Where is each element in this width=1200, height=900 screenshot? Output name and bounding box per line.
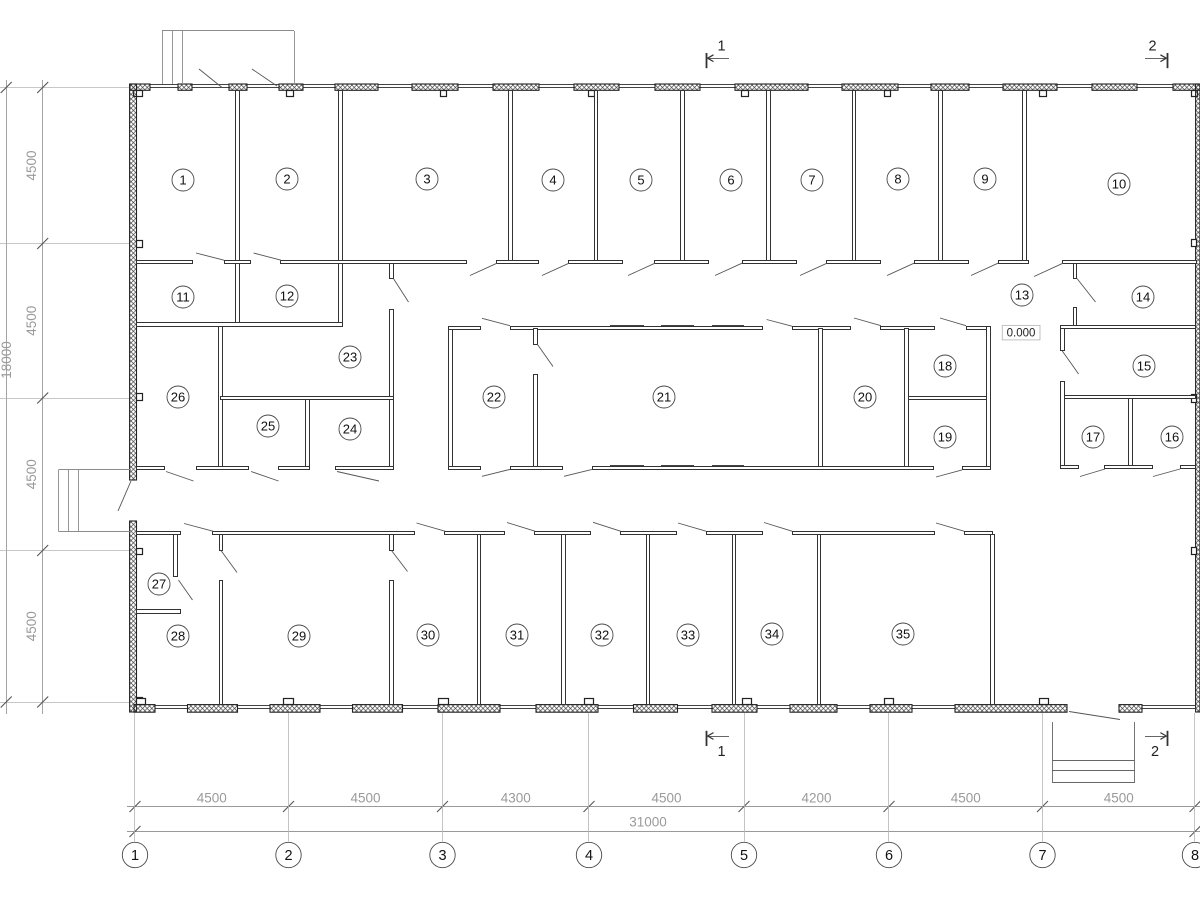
svg-text:5: 5: [637, 173, 644, 188]
svg-text:1: 1: [717, 39, 725, 55]
svg-text:16: 16: [1165, 430, 1179, 445]
svg-text:5: 5: [740, 848, 748, 864]
svg-text:30: 30: [421, 628, 435, 643]
svg-text:4500: 4500: [951, 791, 981, 806]
svg-text:13: 13: [1015, 288, 1029, 303]
svg-text:8: 8: [1191, 848, 1199, 864]
svg-text:4500: 4500: [197, 791, 227, 806]
svg-text:21: 21: [657, 390, 671, 405]
svg-text:2: 2: [1151, 744, 1159, 760]
svg-text:24: 24: [343, 422, 357, 437]
svg-text:23: 23: [343, 350, 357, 365]
svg-text:2: 2: [284, 848, 292, 864]
svg-text:26: 26: [171, 390, 185, 405]
svg-text:32: 32: [595, 628, 609, 643]
svg-text:6: 6: [727, 173, 734, 188]
svg-text:22: 22: [487, 390, 501, 405]
svg-text:18: 18: [938, 359, 952, 374]
svg-text:31: 31: [510, 628, 524, 643]
svg-text:4200: 4200: [801, 791, 831, 806]
svg-text:7: 7: [1038, 848, 1046, 864]
svg-text:4500: 4500: [24, 459, 39, 489]
svg-text:1: 1: [179, 173, 186, 188]
svg-text:33: 33: [681, 628, 695, 643]
svg-text:4500: 4500: [1104, 791, 1134, 806]
svg-text:8: 8: [894, 172, 901, 187]
svg-text:15: 15: [1137, 359, 1151, 374]
svg-text:4500: 4500: [651, 791, 681, 806]
svg-text:3: 3: [438, 848, 446, 864]
svg-text:2: 2: [283, 172, 290, 187]
svg-text:4500: 4500: [24, 150, 39, 180]
svg-text:4: 4: [549, 173, 556, 188]
svg-text:0.000: 0.000: [1007, 327, 1036, 339]
svg-text:3: 3: [423, 172, 430, 187]
svg-text:34: 34: [765, 627, 779, 642]
svg-text:17: 17: [1086, 430, 1100, 445]
svg-text:7: 7: [808, 173, 815, 188]
svg-text:4: 4: [585, 848, 593, 864]
svg-text:1: 1: [131, 848, 139, 864]
svg-text:29: 29: [292, 629, 306, 644]
svg-text:19: 19: [938, 430, 952, 445]
svg-text:6: 6: [885, 848, 893, 864]
svg-text:10: 10: [1112, 177, 1126, 192]
svg-text:9: 9: [981, 172, 988, 187]
svg-text:1: 1: [717, 744, 725, 760]
svg-text:31000: 31000: [629, 815, 667, 830]
svg-text:35: 35: [896, 627, 910, 642]
svg-text:11: 11: [176, 290, 190, 305]
svg-text:4500: 4500: [350, 791, 380, 806]
svg-text:4300: 4300: [501, 791, 531, 806]
svg-text:12: 12: [280, 289, 294, 304]
svg-text:27: 27: [152, 577, 166, 592]
svg-text:14: 14: [1136, 290, 1150, 305]
svg-text:25: 25: [261, 419, 275, 434]
svg-text:20: 20: [858, 390, 872, 405]
svg-text:28: 28: [171, 629, 185, 644]
svg-text:4500: 4500: [24, 611, 39, 641]
svg-text:2: 2: [1148, 39, 1156, 55]
svg-text:4500: 4500: [24, 306, 39, 336]
svg-text:18000: 18000: [0, 341, 14, 379]
